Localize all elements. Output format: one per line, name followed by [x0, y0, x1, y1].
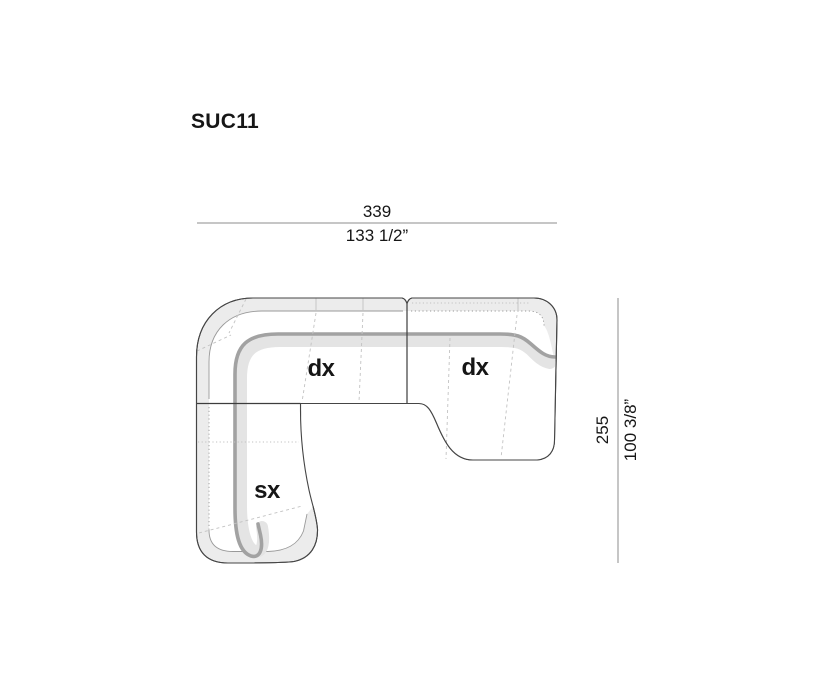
depth-inches: 100 3/8”	[621, 398, 640, 461]
section-label-sx: sx	[254, 477, 281, 504]
depth-dimension: 255 100 3/8”	[593, 298, 640, 563]
width-dimension: 339 133 1/2”	[197, 202, 557, 245]
width-cm: 339	[363, 202, 391, 221]
depth-cm: 255	[593, 416, 612, 444]
section-label-dx-1: dx	[307, 355, 335, 382]
section-label-dx-2: dx	[461, 354, 489, 381]
drawing-page: SUC11 339 133 1/2” 255 100 3/8” dx dx sx	[0, 0, 840, 679]
sofa-plan-drawing: SUC11 339 133 1/2” 255 100 3/8” dx dx sx	[0, 0, 840, 679]
product-code: SUC11	[191, 110, 259, 133]
width-inches: 133 1/2”	[346, 226, 409, 245]
